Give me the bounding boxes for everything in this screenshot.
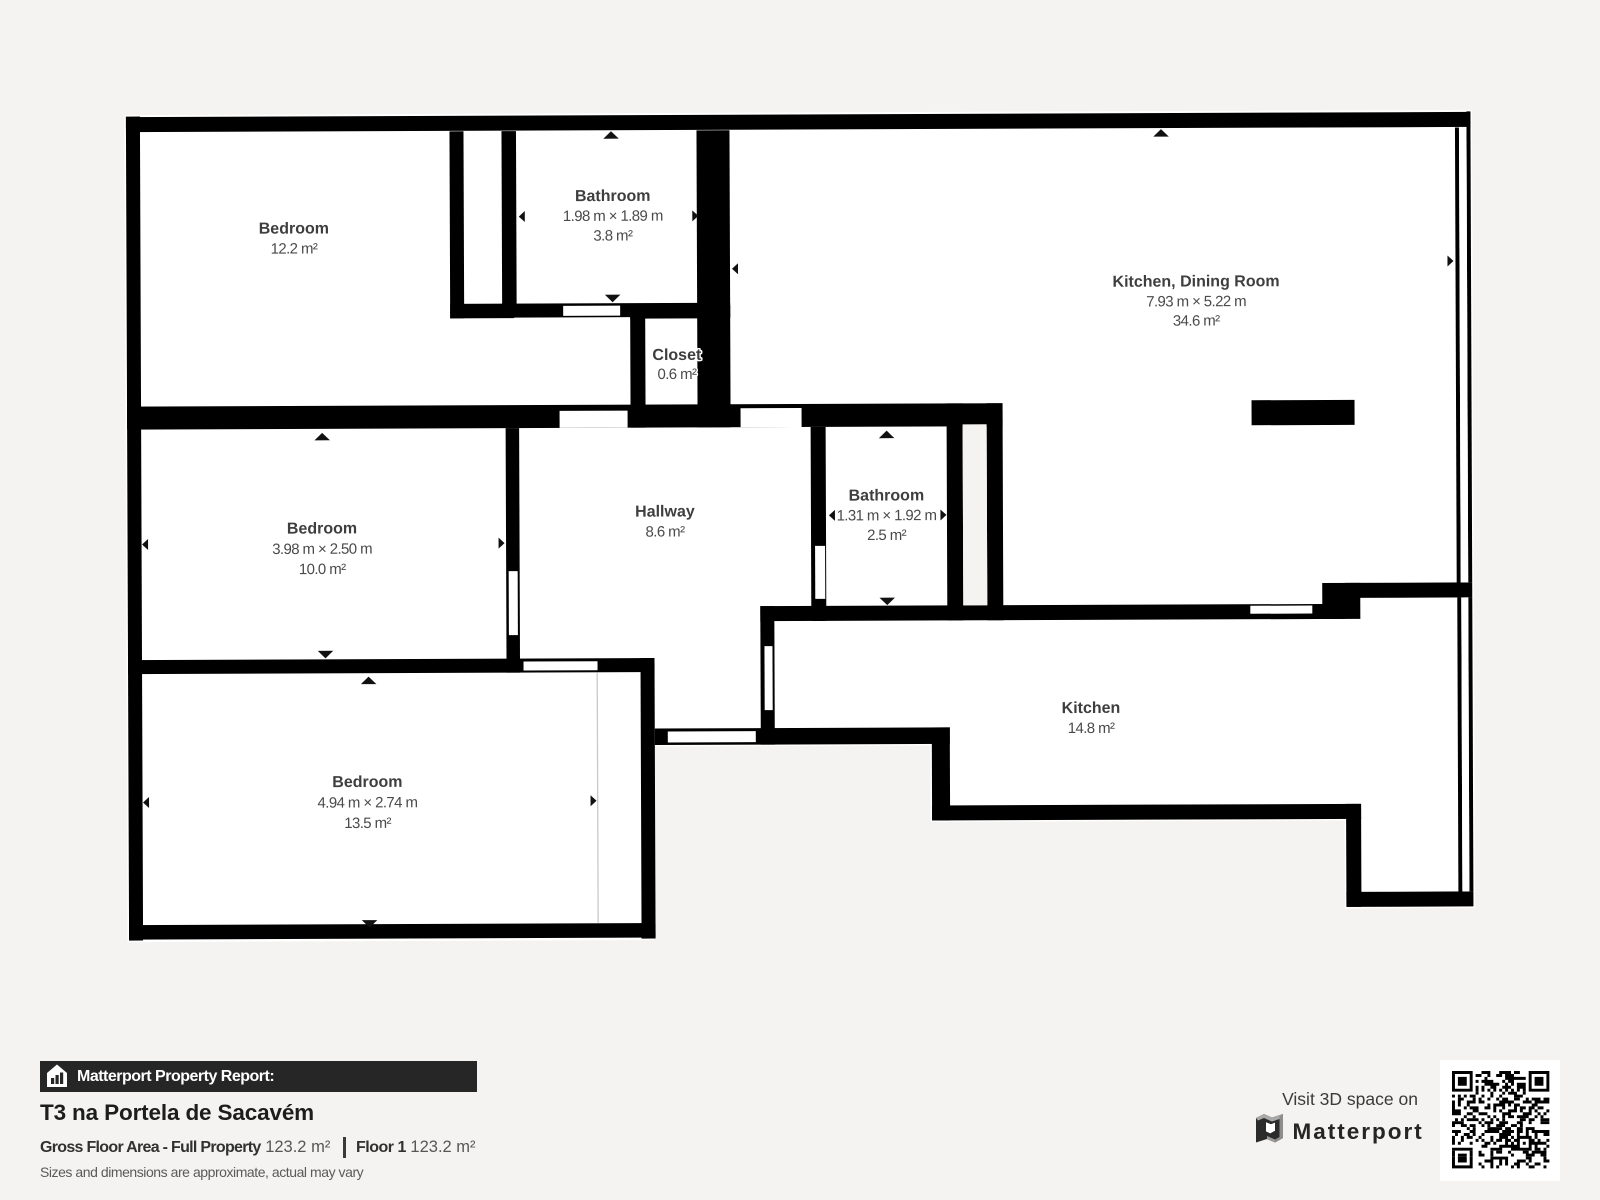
svg-text:1.31 m × 1.92 m: 1.31 m × 1.92 m (837, 507, 937, 524)
svg-text:14.8 m²: 14.8 m² (1068, 720, 1115, 737)
svg-text:Bedroom: Bedroom (287, 520, 357, 537)
svg-text:Bathroom: Bathroom (849, 487, 925, 504)
svg-text:Bedroom: Bedroom (259, 220, 329, 237)
svg-text:3.8 m²: 3.8 m² (593, 227, 633, 244)
svg-text:10.0 m²: 10.0 m² (299, 561, 346, 578)
svg-text:4.94 m × 2.74 m: 4.94 m × 2.74 m (318, 794, 418, 811)
svg-text:7.93 m × 5.22 m: 7.93 m × 5.22 m (1146, 293, 1246, 310)
svg-text:Kitchen: Kitchen (1062, 700, 1121, 717)
svg-text:12.2 m²: 12.2 m² (271, 240, 318, 257)
svg-text:2.5 m²: 2.5 m² (867, 527, 907, 544)
svg-text:Hallway: Hallway (635, 503, 695, 520)
svg-text:8.6 m²: 8.6 m² (646, 523, 686, 540)
svg-text:Bedroom: Bedroom (332, 774, 402, 791)
svg-text:1.98 m × 1.89 m: 1.98 m × 1.89 m (563, 208, 663, 225)
svg-text:Closet: Closet (652, 347, 702, 364)
svg-text:13.5 m²: 13.5 m² (344, 815, 391, 832)
svg-text:Bathroom: Bathroom (575, 188, 651, 205)
svg-text:Kitchen, Dining Room: Kitchen, Dining Room (1112, 273, 1279, 291)
svg-text:34.6 m²: 34.6 m² (1173, 312, 1220, 329)
svg-text:3.98 m × 2.50 m: 3.98 m × 2.50 m (272, 541, 372, 558)
svg-text:0.6 m²: 0.6 m² (657, 366, 697, 383)
